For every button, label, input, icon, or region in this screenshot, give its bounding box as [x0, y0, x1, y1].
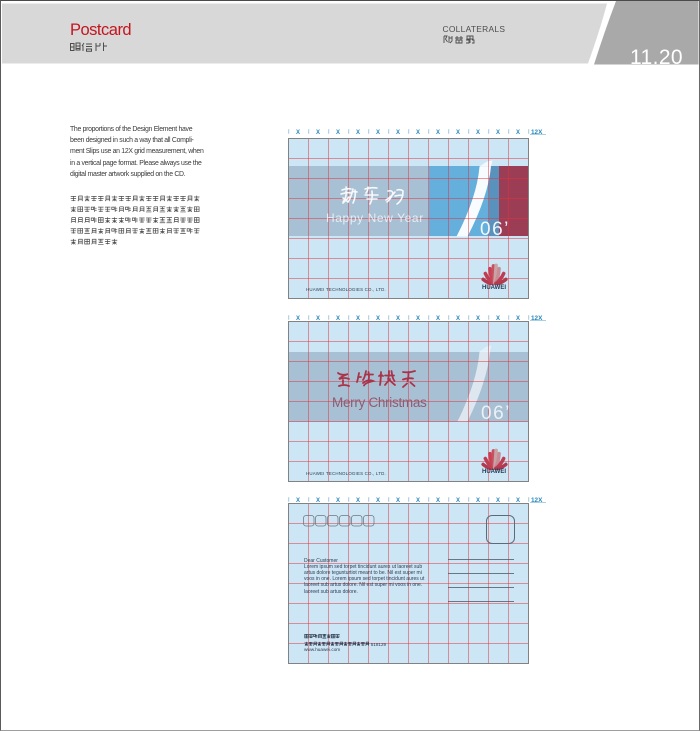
svg-text:X: X: [316, 130, 320, 135]
svg-text:X: X: [356, 130, 360, 135]
svg-text:518129: 518129: [371, 641, 387, 646]
svg-text:X: X: [336, 130, 340, 135]
svg-text:X: X: [296, 130, 300, 135]
svg-text:X: X: [476, 130, 480, 135]
svg-text:12X: 12X: [531, 129, 543, 135]
svg-text:X: X: [456, 130, 460, 135]
svg-text:X: X: [436, 130, 440, 135]
svg-text:X: X: [416, 130, 420, 135]
svg-text:X: X: [496, 130, 500, 135]
svg-text:X: X: [396, 130, 400, 135]
svg-text:X: X: [376, 130, 380, 135]
svg-text:12X: 12X: [531, 315, 543, 321]
svg-text:12X: 12X: [531, 497, 543, 503]
svg-text:X: X: [516, 130, 520, 135]
